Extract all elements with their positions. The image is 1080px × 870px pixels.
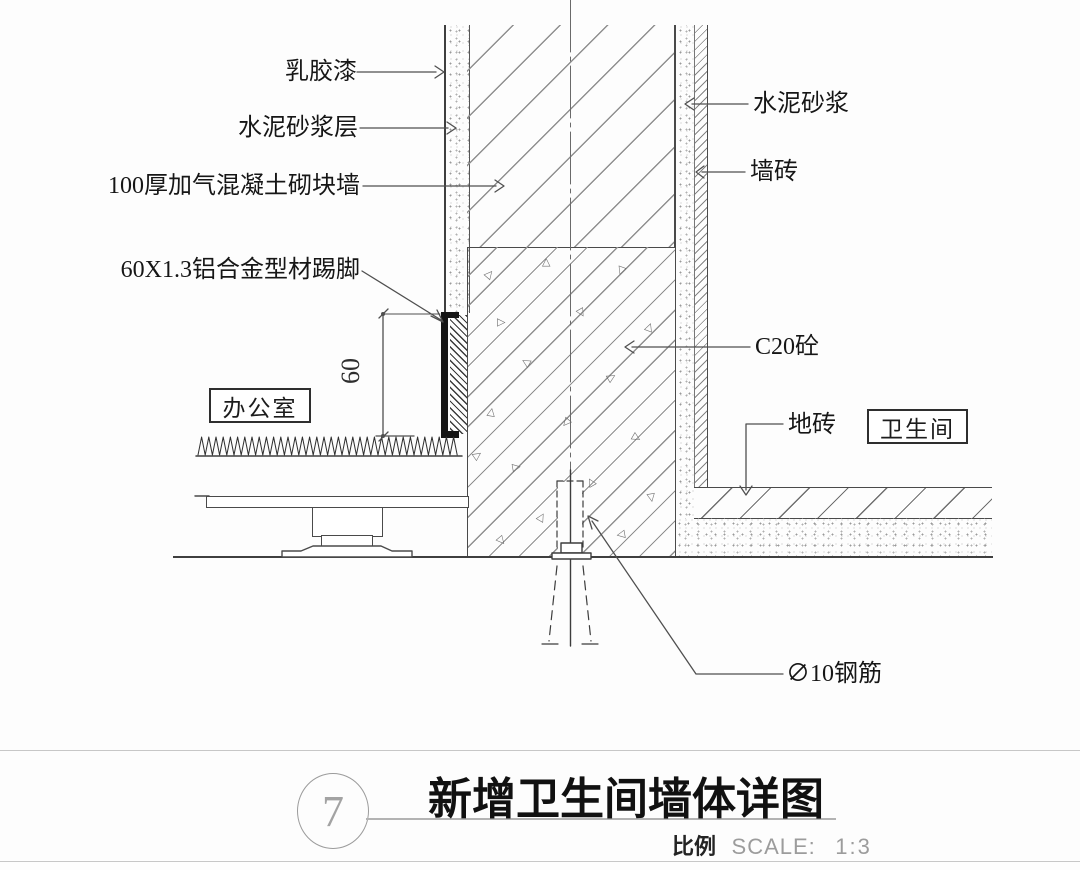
room-label-bathroom-text: 卫生间 [880, 410, 955, 444]
scale-row: 比例 SCALE: 1:3 [672, 829, 872, 861]
detail-number-bubble: 7 [297, 773, 369, 849]
pedestal-base [282, 546, 412, 557]
carpet-zigzag [198, 437, 457, 455]
label-cement-mortar: 水泥砂浆 [753, 92, 849, 116]
label-rebar: ∅10钢筋 [786, 662, 882, 686]
scale-label: 比例 [672, 834, 716, 859]
title-block-top-rule [0, 750, 1080, 751]
dimension-line-60 [376, 309, 440, 441]
detail-drawing-canvas: △△△△△△△△△△△△△△△△△△ [0, 0, 1080, 870]
room-label-office: 办公室 [209, 388, 311, 423]
label-c20-concrete: C20砼 [755, 335, 819, 359]
label-floor-tile: 地砖 [788, 413, 836, 437]
label-skirting: 60X1.3铝合金型材踢脚 [121, 258, 360, 282]
rebar-anchor-plate [552, 553, 591, 559]
label-latex-paint: 乳胶漆 [285, 60, 357, 84]
scale-value: 1:3 [835, 834, 872, 859]
room-label-office-text: 办公室 [223, 389, 298, 423]
label-wall-tile: 墙砖 [750, 160, 798, 184]
label-block-wall: 100厚加气混凝土砌块墙 [108, 174, 360, 198]
detail-number: 7 [322, 786, 344, 837]
scale-text: SCALE: [732, 834, 816, 859]
title-block-bottom-rule [0, 861, 1080, 862]
room-label-bathroom: 卫生间 [867, 409, 968, 444]
rebar-graphic [542, 470, 598, 646]
label-cement-mortar-layer: 水泥砂浆层 [238, 116, 358, 140]
sheet-title: 新增卫生间墙体详图 [428, 763, 824, 827]
dimension-text-60: 60 [338, 358, 364, 384]
rebar-anchor-nut [561, 543, 582, 553]
